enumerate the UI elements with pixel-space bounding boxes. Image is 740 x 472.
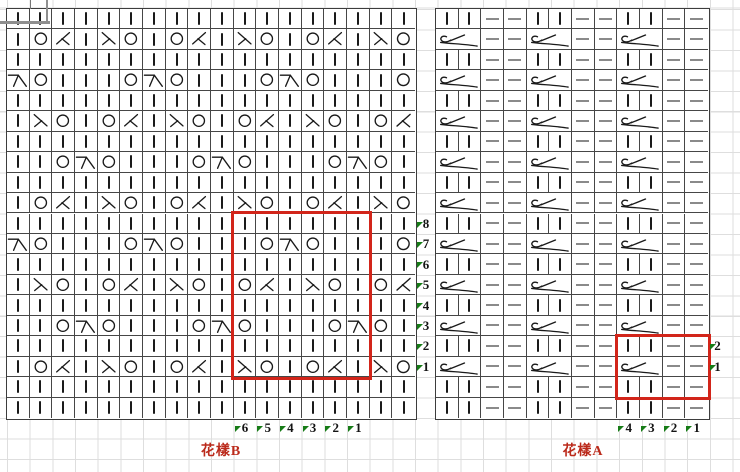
chart-cell <box>120 254 143 274</box>
chart-cell <box>392 295 415 315</box>
chart-cell <box>481 132 504 152</box>
knit-bar-icon <box>289 360 291 373</box>
chart-cell <box>143 234 166 254</box>
purl-dash-icon <box>486 304 499 306</box>
chart-cell <box>572 29 595 49</box>
knit-bar-icon <box>403 53 405 66</box>
chart-cell <box>640 91 663 111</box>
chart-cell <box>75 398 98 418</box>
knit-bar-icon <box>130 94 132 107</box>
knit-bar-icon <box>380 135 382 148</box>
top-bar-decrease-icon <box>143 70 165 89</box>
chart-cell <box>98 132 121 152</box>
knit-bar-icon <box>468 53 470 66</box>
purl-dash-icon <box>508 59 521 61</box>
chart-cell <box>324 91 347 111</box>
green-corner-marker-icon <box>235 419 241 425</box>
knit-bar-icon <box>289 94 291 107</box>
knit-bar-icon <box>221 12 223 25</box>
chart-cell <box>120 398 143 418</box>
knit-bar-icon <box>17 94 19 107</box>
knit-bar-icon <box>244 237 246 250</box>
two-stitch-twist-icon <box>436 357 480 376</box>
purl-dash-icon <box>599 59 612 61</box>
top-bar-decrease-icon <box>279 70 301 89</box>
chart-cell <box>188 275 211 295</box>
knit-bar-icon <box>403 258 405 271</box>
chart-cell <box>166 152 189 172</box>
right-point-decrease-icon <box>30 275 52 294</box>
chart-cell <box>549 132 572 152</box>
two-stitch-twist-icon <box>617 152 661 171</box>
knit-bar-icon <box>17 258 19 271</box>
chart-cell <box>324 214 347 234</box>
chart-cell <box>685 70 708 90</box>
knit-bar-icon <box>334 135 336 148</box>
chart-cell <box>234 357 257 377</box>
chart-cell <box>481 316 504 336</box>
chart-cell <box>640 173 663 193</box>
chart-cell <box>166 91 189 111</box>
purl-dash-icon <box>667 18 680 20</box>
knit-bar-icon <box>357 12 359 25</box>
chart-cell <box>436 377 459 397</box>
chart-cell <box>347 173 370 193</box>
chart-cell <box>302 275 325 295</box>
chart-cell <box>7 193 30 213</box>
chart-cell <box>52 91 75 111</box>
chart-cell <box>481 111 504 131</box>
right-point-decrease-icon <box>302 111 324 130</box>
chart-cell <box>211 254 234 274</box>
chart-cell <box>549 336 572 356</box>
purl-dash-icon <box>667 324 680 326</box>
purl-dash-icon <box>667 345 680 347</box>
purl-dash-icon <box>508 243 521 245</box>
chart-cell <box>166 377 189 397</box>
chart-cell <box>166 234 189 254</box>
purl-dash-icon <box>576 324 589 326</box>
knit-bar-icon <box>468 299 470 312</box>
knit-bar-icon <box>221 114 223 127</box>
chart-cell <box>234 152 257 172</box>
chart-cell <box>663 295 686 315</box>
chart-cell <box>527 193 572 213</box>
right-point-decrease-icon <box>98 193 120 212</box>
chart-cell <box>302 398 325 418</box>
knit-bar-icon <box>153 53 155 66</box>
purl-dash-icon <box>576 140 589 142</box>
chart-cell <box>617 214 640 234</box>
yarn-over-icon <box>52 275 74 294</box>
purl-dash-icon <box>667 202 680 204</box>
knit-bar-icon <box>153 360 155 373</box>
chart-cell <box>640 377 663 397</box>
chart-cell <box>143 398 166 418</box>
yarn-over-icon <box>30 357 52 376</box>
green-corner-marker-icon <box>257 419 263 425</box>
yarn-over-icon <box>302 29 324 48</box>
chart-cell <box>527 316 572 336</box>
chart-cell <box>617 357 662 377</box>
two-stitch-twist-icon <box>527 275 571 294</box>
chart-cell <box>120 214 143 234</box>
knit-bar-icon <box>221 339 223 352</box>
chart-cell <box>595 29 618 49</box>
right-point-decrease-icon <box>166 275 188 294</box>
chart-cell <box>527 91 550 111</box>
green-corner-marker-icon <box>710 337 716 343</box>
chart-cell <box>370 377 393 397</box>
chart-cell <box>459 295 482 315</box>
knit-bar-icon <box>176 258 178 271</box>
chart-cell <box>436 254 459 274</box>
knit-bar-icon <box>289 401 291 414</box>
knit-bar-icon <box>357 401 359 414</box>
knit-bar-icon <box>446 12 448 25</box>
chart-cell <box>52 234 75 254</box>
knit-bar-icon <box>108 401 110 414</box>
knit-bar-icon <box>198 401 200 414</box>
chart-cell <box>234 29 257 49</box>
chart-cell <box>30 234 53 254</box>
knit-bar-icon <box>312 12 314 25</box>
chart-cell <box>256 193 279 213</box>
green-corner-marker-icon <box>417 358 423 364</box>
purl-dash-icon <box>486 345 499 347</box>
pattern-b-chart <box>6 8 417 420</box>
top-bar-decrease-icon <box>347 152 369 171</box>
knit-bar-icon <box>85 114 87 127</box>
chart-cell <box>279 316 302 336</box>
chart-cell <box>188 111 211 131</box>
right-point-decrease-icon <box>166 111 188 130</box>
yarn-over-icon <box>30 70 52 89</box>
chart-cell <box>347 91 370 111</box>
chart-cell <box>52 9 75 29</box>
yarn-over-icon <box>52 111 74 130</box>
knit-bar-icon <box>380 74 382 87</box>
chart-cell <box>617 275 662 295</box>
chart-cell <box>504 9 527 29</box>
chart-cell <box>7 111 30 131</box>
knit-bar-icon <box>468 217 470 230</box>
chart-cell <box>256 29 279 49</box>
purl-dash-icon <box>576 18 589 20</box>
chart-cell <box>481 214 504 234</box>
chart-cell <box>549 173 572 193</box>
green-corner-marker-icon <box>303 419 309 425</box>
chart-cell <box>256 234 279 254</box>
chart-cell <box>75 254 98 274</box>
left-point-decrease-icon <box>120 111 142 130</box>
knit-bar-icon <box>221 74 223 87</box>
chart-cell <box>98 336 121 356</box>
knit-bar-icon <box>244 401 246 414</box>
chart-cell <box>302 234 325 254</box>
knit-bar-icon <box>176 135 178 148</box>
knit-bar-icon <box>357 360 359 373</box>
purl-dash-icon <box>508 365 521 367</box>
yarn-over-icon <box>188 316 210 335</box>
chart-cell <box>392 398 415 418</box>
chart-cell <box>504 70 527 90</box>
purl-dash-icon <box>508 304 521 306</box>
top-bar-decrease-icon <box>7 70 29 89</box>
purl-dash-icon <box>690 140 703 142</box>
knit-bar-icon <box>17 360 19 373</box>
chart-cell <box>75 152 98 172</box>
chart-cell <box>52 398 75 418</box>
knit-bar-icon <box>537 53 539 66</box>
chart-cell <box>640 214 663 234</box>
purl-dash-icon <box>486 365 499 367</box>
purl-dash-icon <box>599 284 612 286</box>
chart-cell <box>234 50 257 70</box>
knit-bar-icon <box>468 339 470 352</box>
chart-cell <box>279 29 302 49</box>
knit-bar-icon <box>334 94 336 107</box>
chart-cell <box>256 91 279 111</box>
knit-bar-icon <box>153 319 155 332</box>
knit-bar-icon <box>650 135 652 148</box>
chart-cell <box>234 70 257 90</box>
chart-cell <box>617 295 640 315</box>
knit-bar-icon <box>334 237 336 250</box>
chart-cell <box>211 111 234 131</box>
chart-cell <box>98 70 121 90</box>
purl-dash-icon <box>690 181 703 183</box>
knit-bar-icon <box>176 380 178 393</box>
chart-cell <box>504 91 527 111</box>
chart-cell <box>392 111 415 131</box>
yarn-over-icon <box>392 29 415 48</box>
knit-bar-icon <box>468 380 470 393</box>
knit-bar-icon <box>244 135 246 148</box>
chart-cell <box>347 111 370 131</box>
chart-cell <box>370 275 393 295</box>
knit-bar-icon <box>468 176 470 189</box>
knit-bar-icon <box>357 196 359 209</box>
knit-bar-icon <box>39 94 41 107</box>
chart-cell <box>324 275 347 295</box>
knit-bar-icon <box>380 94 382 107</box>
knit-bar-icon <box>244 217 246 230</box>
yarn-over-icon <box>234 111 256 130</box>
knit-bar-icon <box>176 176 178 189</box>
knit-bar-icon <box>266 401 268 414</box>
chart-cell <box>279 295 302 315</box>
knit-bar-icon <box>627 12 629 25</box>
knit-bar-icon <box>627 94 629 107</box>
chart-cell <box>211 234 234 254</box>
knit-bar-icon <box>266 94 268 107</box>
chart-cell <box>617 29 662 49</box>
chart-cell <box>302 377 325 397</box>
chart-cell <box>504 316 527 336</box>
purl-dash-icon <box>486 38 499 40</box>
green-corner-marker-icon <box>417 276 423 282</box>
knit-bar-icon <box>537 94 539 107</box>
chart-cell <box>663 357 686 377</box>
chart-cell <box>572 9 595 29</box>
chart-cell <box>324 29 347 49</box>
knit-bar-icon <box>130 176 132 189</box>
chart-cell <box>279 357 302 377</box>
chart-cell <box>302 132 325 152</box>
left-point-decrease-icon <box>256 111 278 130</box>
two-stitch-twist-icon <box>436 70 480 89</box>
knit-bar-icon <box>153 401 155 414</box>
chart-cell <box>481 50 504 70</box>
purl-dash-icon <box>508 324 521 326</box>
chart-cell <box>436 336 459 356</box>
chart-cell <box>7 336 30 356</box>
knit-bar-icon <box>537 401 539 414</box>
knit-bar-icon <box>221 401 223 414</box>
knit-bar-icon <box>153 217 155 230</box>
chart-cell <box>572 91 595 111</box>
chart-cell <box>279 234 302 254</box>
yarn-over-icon <box>234 275 256 294</box>
chart-cell <box>211 275 234 295</box>
knit-bar-icon <box>559 339 561 352</box>
chart-cell <box>188 91 211 111</box>
knit-bar-icon <box>62 53 64 66</box>
chart-cell <box>166 193 189 213</box>
yarn-over-icon <box>392 357 415 376</box>
chart-cell <box>436 295 459 315</box>
purl-dash-icon <box>690 304 703 306</box>
chart-cell <box>617 132 640 152</box>
chart-cell <box>347 377 370 397</box>
purl-dash-icon <box>690 386 703 388</box>
chart-cell <box>188 254 211 274</box>
purl-dash-icon <box>599 222 612 224</box>
purl-dash-icon <box>690 79 703 81</box>
purl-dash-icon <box>508 181 521 183</box>
chart-cell <box>370 50 393 70</box>
knit-bar-icon <box>266 299 268 312</box>
purl-dash-icon <box>576 386 589 388</box>
chart-cell <box>234 275 257 295</box>
pattern-a-label: 花樣A <box>548 440 618 460</box>
knit-bar-icon <box>153 176 155 189</box>
knit-bar-icon <box>537 339 539 352</box>
knit-bar-icon <box>403 319 405 332</box>
chart-cell <box>392 357 415 377</box>
left-point-decrease-icon <box>188 193 210 212</box>
knit-bar-icon <box>627 176 629 189</box>
yarn-over-icon <box>120 70 142 89</box>
purl-dash-icon <box>508 18 521 20</box>
chart-cell <box>436 398 459 418</box>
purl-dash-icon <box>486 59 499 61</box>
knit-bar-icon <box>85 237 87 250</box>
knit-bar-icon <box>153 258 155 271</box>
chart-cell <box>120 9 143 29</box>
chart-cell <box>7 70 30 90</box>
purl-dash-icon <box>599 120 612 122</box>
chart-cell <box>572 234 595 254</box>
knit-bar-icon <box>403 12 405 25</box>
chart-cell <box>7 9 30 29</box>
yarn-over-icon <box>166 70 188 89</box>
chart-cell <box>256 377 279 397</box>
chart-cell <box>572 336 595 356</box>
chart-cell <box>52 357 75 377</box>
chart-cell <box>75 214 98 234</box>
knit-bar-icon <box>198 74 200 87</box>
yarn-over-icon <box>302 234 324 253</box>
chart-cell <box>370 234 393 254</box>
chart-cell <box>30 336 53 356</box>
knit-bar-icon <box>17 176 19 189</box>
chart-cell <box>527 29 572 49</box>
chart-cell <box>527 111 572 131</box>
chart-cell <box>685 357 708 377</box>
knit-bar-icon <box>153 278 155 291</box>
chart-cell <box>52 316 75 336</box>
knit-bar-icon <box>627 339 629 352</box>
knit-bar-icon <box>266 176 268 189</box>
top-bar-decrease-icon <box>75 316 97 335</box>
chart-cell <box>617 111 662 131</box>
chart-cell <box>481 173 504 193</box>
knit-bar-icon <box>62 74 64 87</box>
chart-cell <box>572 50 595 70</box>
knit-bar-icon <box>198 12 200 25</box>
knit-bar-icon <box>334 401 336 414</box>
knit-bar-icon <box>85 74 87 87</box>
yarn-over-icon <box>98 275 120 294</box>
chart-cell <box>7 398 30 418</box>
chart-cell <box>640 336 663 356</box>
chart-cell <box>143 254 166 274</box>
left-point-decrease-icon <box>324 29 346 48</box>
chart-cell <box>504 295 527 315</box>
chart-cell <box>347 214 370 234</box>
knit-bar-icon <box>289 155 291 168</box>
chart-cell <box>98 316 121 336</box>
chart-cell <box>663 70 686 90</box>
chart-cell <box>279 275 302 295</box>
chart-cell <box>256 316 279 336</box>
knit-bar-icon <box>289 339 291 352</box>
knit-bar-icon <box>357 380 359 393</box>
chart-cell <box>459 214 482 234</box>
right-point-decrease-icon <box>234 29 256 48</box>
chart-cell <box>75 357 98 377</box>
chart-cell <box>617 316 662 336</box>
knit-bar-icon <box>357 339 359 352</box>
chart-cell <box>549 295 572 315</box>
chart-cell <box>527 50 550 70</box>
two-stitch-twist-icon <box>527 70 571 89</box>
chart-cell <box>211 70 234 90</box>
chart-cell <box>617 9 640 29</box>
chart-cell <box>7 234 30 254</box>
purl-dash-icon <box>599 304 612 306</box>
chart-cell <box>52 152 75 172</box>
knit-bar-icon <box>17 380 19 393</box>
chart-cell <box>143 9 166 29</box>
chart-cell <box>302 70 325 90</box>
knit-bar-icon <box>559 299 561 312</box>
chart-cell <box>459 398 482 418</box>
yarn-over-icon <box>324 275 346 294</box>
chart-cell <box>302 295 325 315</box>
